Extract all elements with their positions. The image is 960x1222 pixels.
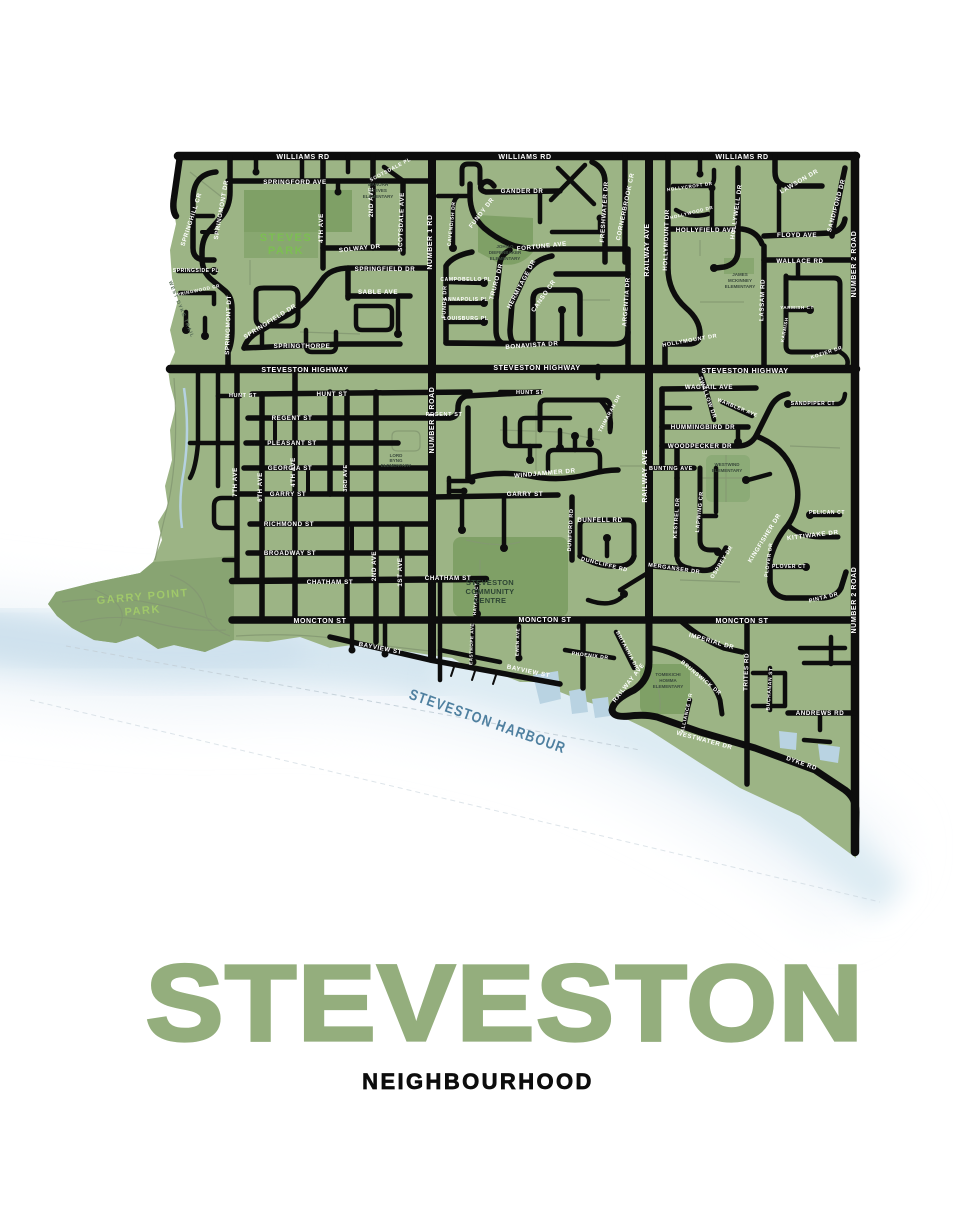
svg-text:MONCTON ST: MONCTON ST	[519, 617, 572, 624]
svg-text:STEVESTON HIGHWAY: STEVESTON HIGHWAY	[701, 368, 788, 375]
svg-text:LASSAM RD: LASSAM RD	[758, 279, 766, 321]
svg-text:DIEFENBAKER: DIEFENBAKER	[489, 250, 522, 255]
svg-text:SPRINGFIELD DR: SPRINGFIELD DR	[355, 266, 416, 273]
svg-text:ELEMENTARY: ELEMENTARY	[725, 284, 756, 289]
svg-text:MANOAH: MANOAH	[368, 182, 388, 187]
svg-text:WILLIAMS RD: WILLIAMS RD	[715, 154, 768, 161]
svg-text:JAMES: JAMES	[732, 272, 748, 277]
svg-text:JOHN G: JOHN G	[496, 244, 514, 249]
svg-text:HUNT ST: HUNT ST	[229, 393, 257, 399]
svg-text:GARRY ST: GARRY ST	[270, 491, 306, 498]
svg-text:HUNT ST: HUNT ST	[316, 391, 347, 398]
svg-text:BUNTING AVE: BUNTING AVE	[649, 466, 693, 472]
svg-text:STEVESTON: STEVESTON	[146, 942, 865, 1063]
svg-text:LOUISBURG PL: LOUISBURG PL	[444, 316, 489, 322]
svg-text:PLEASANT ST: PLEASANT ST	[267, 440, 317, 447]
svg-text:WILLIAMS RD: WILLIAMS RD	[498, 154, 551, 161]
svg-text:SPRINGSIDE PL: SPRINGSIDE PL	[173, 268, 219, 274]
svg-text:ELEMENTARY: ELEMENTARY	[490, 256, 521, 261]
svg-text:WALLACE RD: WALLACE RD	[776, 258, 823, 265]
svg-text:TOMEKICHI: TOMEKICHI	[655, 672, 680, 677]
svg-text:7TH AVE: 7TH AVE	[232, 467, 239, 497]
svg-text:RAILWAY AVE: RAILWAY AVE	[642, 449, 649, 502]
svg-text:ELEMENTARY: ELEMENTARY	[712, 468, 743, 473]
svg-text:NUMBER 1 ROAD: NUMBER 1 ROAD	[429, 387, 436, 454]
svg-text:MCKINNEY: MCKINNEY	[728, 278, 752, 283]
svg-text:COMMUNITY: COMMUNITY	[466, 587, 515, 596]
svg-text:FLOYD AVE: FLOYD AVE	[777, 232, 817, 239]
svg-text:PELICAN CT: PELICAN CT	[809, 510, 845, 516]
svg-text:STEVESTON HIGHWAY: STEVESTON HIGHWAY	[493, 365, 580, 372]
svg-text:RAILWAY AVE: RAILWAY AVE	[644, 223, 651, 276]
svg-text:SANDPIPER CT: SANDPIPER CT	[791, 401, 835, 407]
svg-text:EWEN AVE: EWEN AVE	[515, 628, 521, 656]
svg-text:PARK: PARK	[268, 245, 304, 257]
svg-text:ANDREWS RD: ANDREWS RD	[796, 710, 845, 717]
svg-text:HOMMA: HOMMA	[659, 678, 677, 683]
svg-text:HUNT ST: HUNT ST	[516, 390, 544, 396]
svg-text:DUNFELL RD: DUNFELL RD	[577, 517, 622, 524]
svg-text:SPRINGFORD AVE: SPRINGFORD AVE	[263, 179, 326, 186]
svg-text:MONCTON ST: MONCTON ST	[716, 618, 769, 625]
svg-text:WAGTAIL AVE: WAGTAIL AVE	[685, 384, 733, 391]
svg-text:SPRINGTHORPE: SPRINGTHORPE	[274, 343, 331, 350]
svg-text:PLOVER CT: PLOVER CT	[772, 564, 806, 570]
svg-text:WOODPECKER DR: WOODPECKER DR	[668, 443, 732, 450]
svg-text:STEVESTON: STEVESTON	[466, 578, 514, 587]
svg-text:CHATHAM ST: CHATHAM ST	[307, 579, 353, 586]
svg-text:HUMMINGBIRD DR: HUMMINGBIRD DR	[671, 424, 735, 431]
svg-text:2ND AVE: 2ND AVE	[371, 551, 378, 581]
svg-text:REGENT ST: REGENT ST	[426, 412, 463, 418]
svg-text:NUMBER 1 RD: NUMBER 1 RD	[427, 214, 434, 269]
svg-text:ELEMENTARY: ELEMENTARY	[381, 463, 412, 468]
svg-text:YARMISH CT: YARMISH CT	[780, 305, 814, 310]
svg-text:REGENT ST: REGENT ST	[272, 415, 313, 422]
svg-text:NUMBER 2 ROAD: NUMBER 2 ROAD	[851, 231, 858, 298]
svg-text:HOLLYFIELD AVE: HOLLYFIELD AVE	[676, 227, 736, 234]
svg-text:WILLIAMS RD: WILLIAMS RD	[276, 154, 329, 161]
svg-text:3RD AVE: 3RD AVE	[343, 464, 349, 491]
svg-text:STEVES: STEVES	[260, 232, 312, 244]
svg-text:CHATHAM ST: CHATHAM ST	[425, 575, 471, 582]
svg-text:GARRY ST: GARRY ST	[507, 491, 543, 498]
svg-text:ELEMENTARY: ELEMENTARY	[653, 684, 684, 689]
svg-text:1ST AVE: 1ST AVE	[397, 557, 404, 586]
svg-text:FUNDY DR: FUNDY DR	[441, 285, 448, 318]
svg-text:4TH AVE: 4TH AVE	[318, 213, 325, 243]
svg-text:SABLE AVE: SABLE AVE	[358, 289, 398, 296]
svg-text:RICHMOND ST: RICHMOND ST	[264, 521, 314, 528]
svg-text:CENTRE: CENTRE	[474, 596, 507, 605]
svg-text:MONCTON ST: MONCTON ST	[294, 618, 347, 625]
svg-text:CAMPOBELLO PL: CAMPOBELLO PL	[440, 277, 491, 283]
svg-text:NUMBER 2 ROAD: NUMBER 2 ROAD	[851, 567, 858, 634]
svg-text:STEVES: STEVES	[369, 188, 387, 193]
svg-text:ELEMENTARY: ELEMENTARY	[363, 194, 394, 199]
svg-text:TRITES RD: TRITES RD	[742, 653, 750, 691]
svg-text:GANDER DR: GANDER DR	[501, 188, 544, 195]
svg-text:6TH AVE: 6TH AVE	[257, 472, 264, 502]
svg-text:BROADWAY ST: BROADWAY ST	[264, 550, 316, 557]
svg-text:ANNAPOLIS PL: ANNAPOLIS PL	[444, 297, 488, 303]
svg-text:4TH AVE: 4TH AVE	[290, 457, 297, 487]
svg-text:WESTWIND: WESTWIND	[715, 462, 741, 467]
svg-text:NEIGHBOURHOOD: NEIGHBOURHOOD	[362, 1069, 594, 1094]
svg-text:STEVESTON HIGHWAY: STEVESTON HIGHWAY	[261, 367, 348, 374]
